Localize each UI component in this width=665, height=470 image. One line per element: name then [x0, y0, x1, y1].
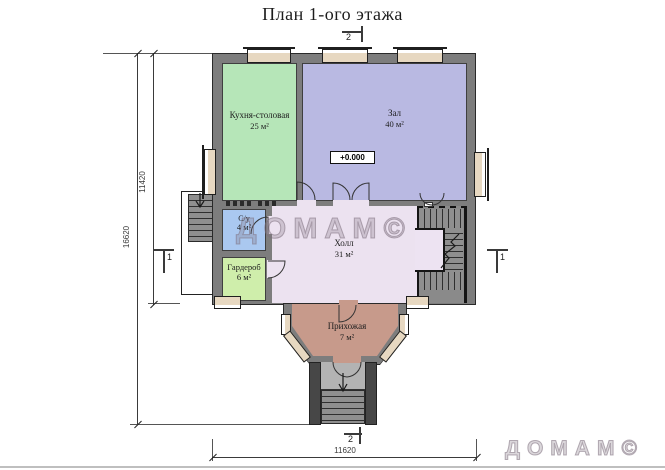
floor-plan-canvas: План 1-ого этажа 2 16620 11420 11620 2 1…: [0, 0, 665, 470]
room-area: 7 м²: [297, 332, 397, 343]
room-zal: [302, 63, 467, 201]
vent-strip: [226, 201, 252, 206]
room-name: Гардероб: [220, 262, 268, 272]
room-area: 31 м²: [294, 249, 394, 260]
window-bottom-left: [214, 296, 241, 309]
label-prihozhaya: Прихожая 7 м²: [297, 321, 397, 343]
dim-tick: [150, 301, 158, 309]
window-top-1: [247, 49, 291, 63]
stair-internal-flight-bottom: [419, 272, 463, 290]
vent-strip: [258, 201, 278, 206]
stair-internal-flight-right: [444, 228, 463, 272]
section-mark-right-label: 1: [500, 252, 505, 262]
section-mark-right-bar: [487, 249, 508, 251]
bottom-rule: [0, 466, 665, 468]
room-kitchen: [222, 63, 297, 201]
dim-line-bottom: [212, 457, 476, 458]
door-gap-entrance: [333, 354, 361, 363]
porch-wall-left: [309, 362, 321, 425]
room-name: Прихожая: [297, 321, 397, 332]
door-gap-bay: [339, 300, 358, 309]
watermark-center: ДОМАМ©: [236, 213, 412, 246]
room-area: 25 м²: [222, 121, 297, 132]
stair-external-left-steps: [188, 194, 213, 242]
dim-label-bottom: 11620: [315, 446, 375, 456]
dim-line-left-outer: [137, 53, 138, 424]
section-mark-top-label: 2: [346, 32, 351, 42]
elevation-badge: +0.000: [330, 151, 375, 164]
window-right: [474, 152, 486, 197]
section-mark-top-stem: [361, 26, 363, 42]
label-zal: Зал 40 м²: [312, 108, 477, 130]
door-gap-kitchen: [297, 200, 316, 207]
dim-label-left-inner: 11420: [138, 152, 148, 212]
room-area: 6 м²: [220, 272, 268, 282]
room-name: Кухня-столовая: [222, 110, 297, 121]
section-mark-left-stem: [163, 250, 165, 273]
watermark-corner: ДОМАМ©: [505, 437, 644, 461]
stair-internal-flight-top: [419, 209, 463, 228]
section-mark-bottom-label: 2: [348, 434, 353, 444]
label-kitchen: Кухня-столовая 25 м²: [222, 110, 297, 132]
room-area: 40 м²: [312, 119, 477, 130]
extension-line-top: [103, 53, 213, 54]
section-mark-left-label: 1: [167, 252, 172, 262]
extension-line-bottom: [130, 424, 312, 425]
section-mark-top-bar: [342, 31, 362, 33]
door-gap-zal: [333, 200, 369, 207]
porch-landing: [321, 362, 365, 390]
section-mark-right-stem: [496, 250, 498, 273]
window-bottom-right: [406, 296, 429, 309]
section-mark-bottom-stem: [359, 427, 361, 444]
label-garderob: Гардероб 6 м²: [220, 262, 268, 282]
window-sill: [487, 148, 489, 201]
window-left: [204, 149, 216, 195]
page-title: План 1-ого этажа: [0, 4, 665, 25]
porch-wall-right: [365, 362, 377, 425]
porch-steps: [321, 390, 365, 424]
dim-line-left-inner: [153, 53, 154, 305]
stair-marker: [424, 202, 433, 207]
dim-label-left-outer: 16620: [122, 207, 132, 267]
window-top-2: [322, 49, 368, 63]
window-top-3: [397, 49, 443, 63]
room-name: Зал: [312, 108, 477, 119]
stair-internal-landing: [415, 228, 445, 272]
